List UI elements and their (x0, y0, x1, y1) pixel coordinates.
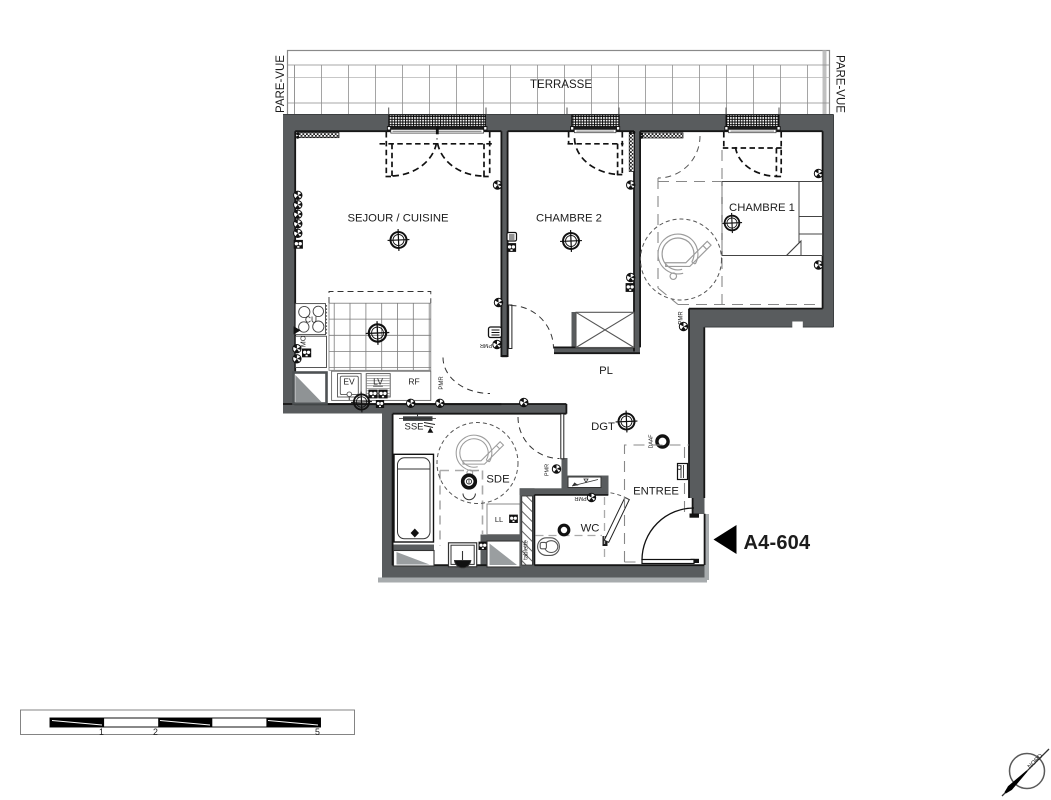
svg-text:PMR: PMR (439, 376, 445, 390)
svg-text:WC: WC (581, 523, 600, 535)
svg-text:SDE: SDE (486, 474, 510, 486)
svg-text:1: 1 (99, 727, 104, 737)
svg-text:PARE-VUE: PARE-VUE (275, 55, 287, 113)
svg-text:DGT: DGT (591, 421, 615, 433)
svg-text:5: 5 (315, 727, 320, 737)
svg-text:PL: PL (599, 365, 613, 377)
svg-text:EV: EV (343, 377, 355, 387)
svg-text:PMR: PMR (480, 342, 492, 348)
svg-text:RF: RF (408, 377, 419, 387)
svg-text:2: 2 (153, 727, 158, 737)
svg-text:CHAMBRE 2: CHAMBRE 2 (536, 213, 602, 225)
svg-text:DAAF: DAAF (649, 435, 655, 449)
svg-text:A4-604: A4-604 (744, 532, 811, 554)
svg-text:tablette: tablette (523, 539, 529, 559)
svg-text:ENTREE: ENTREE (633, 486, 679, 498)
svg-text:SEJOUR / CUISINE: SEJOUR / CUISINE (347, 213, 449, 225)
svg-text:PARE-VUE: PARE-VUE (834, 55, 846, 113)
svg-text:PMR: PMR (545, 464, 551, 476)
svg-text:TERRASSE: TERRASSE (530, 79, 592, 91)
svg-text:CHAMBRE 1: CHAMBRE 1 (729, 202, 795, 214)
svg-text:LV: LV (373, 377, 383, 387)
svg-text:PMR: PMR (574, 495, 586, 501)
svg-text:SSE: SSE (404, 422, 423, 433)
svg-text:CU: CU (305, 315, 317, 325)
svg-text:LL: LL (495, 515, 503, 524)
